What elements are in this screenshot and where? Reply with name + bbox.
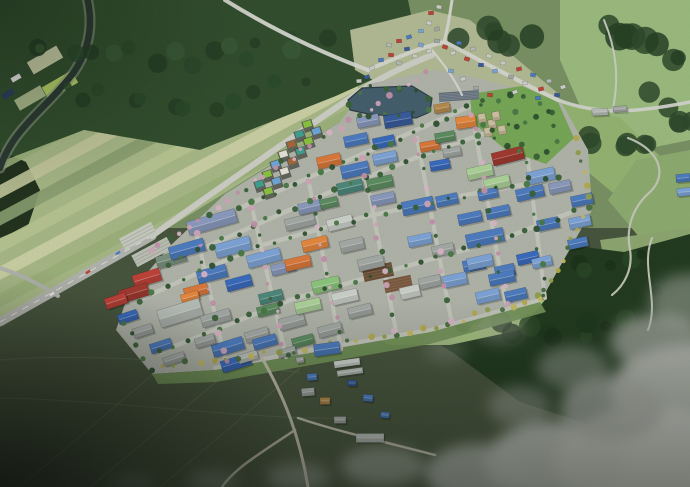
corner-vignette-bl — [0, 227, 360, 487]
aerial-rendering — [0, 0, 690, 487]
corner-vignette-tl — [0, 0, 300, 240]
industrial-complex-scene — [0, 0, 690, 487]
